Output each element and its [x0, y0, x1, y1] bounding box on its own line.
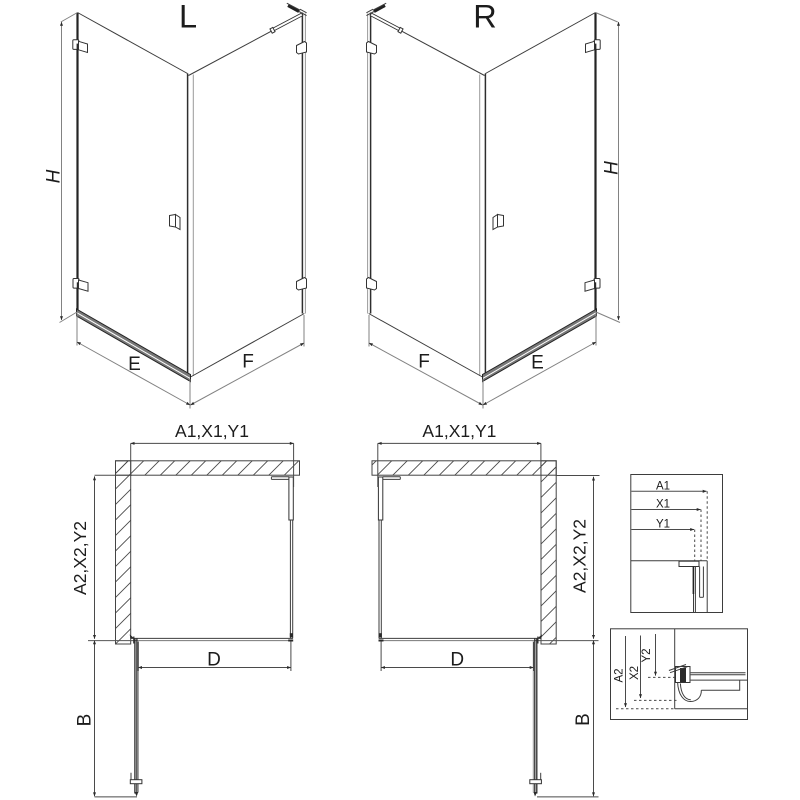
- svg-text:D: D: [207, 650, 221, 671]
- svg-text:A2,X2,Y2: A2,X2,Y2: [569, 519, 589, 593]
- svg-text:E: E: [128, 354, 141, 375]
- svg-text:F: F: [418, 352, 430, 373]
- svg-text:X1: X1: [656, 499, 670, 511]
- svg-text:F: F: [242, 352, 254, 373]
- svg-text:Y1: Y1: [656, 519, 670, 531]
- svg-text:H: H: [44, 169, 65, 183]
- svg-text:B: B: [573, 713, 594, 726]
- svg-text:B: B: [75, 714, 96, 727]
- svg-text:Y2: Y2: [641, 648, 653, 662]
- svg-text:A2,X2,Y2: A2,X2,Y2: [70, 521, 90, 595]
- svg-text:L: L: [179, 0, 197, 35]
- svg-text:A1,X1,Y1: A1,X1,Y1: [175, 421, 249, 441]
- svg-text:D: D: [450, 650, 464, 671]
- svg-text:H: H: [602, 161, 623, 175]
- svg-text:E: E: [531, 353, 544, 374]
- svg-text:R: R: [473, 0, 496, 35]
- svg-text:A1: A1: [656, 480, 670, 492]
- svg-text:A1,X1,Y1: A1,X1,Y1: [422, 421, 496, 441]
- svg-text:A2: A2: [614, 668, 626, 682]
- svg-text:X2: X2: [629, 666, 641, 680]
